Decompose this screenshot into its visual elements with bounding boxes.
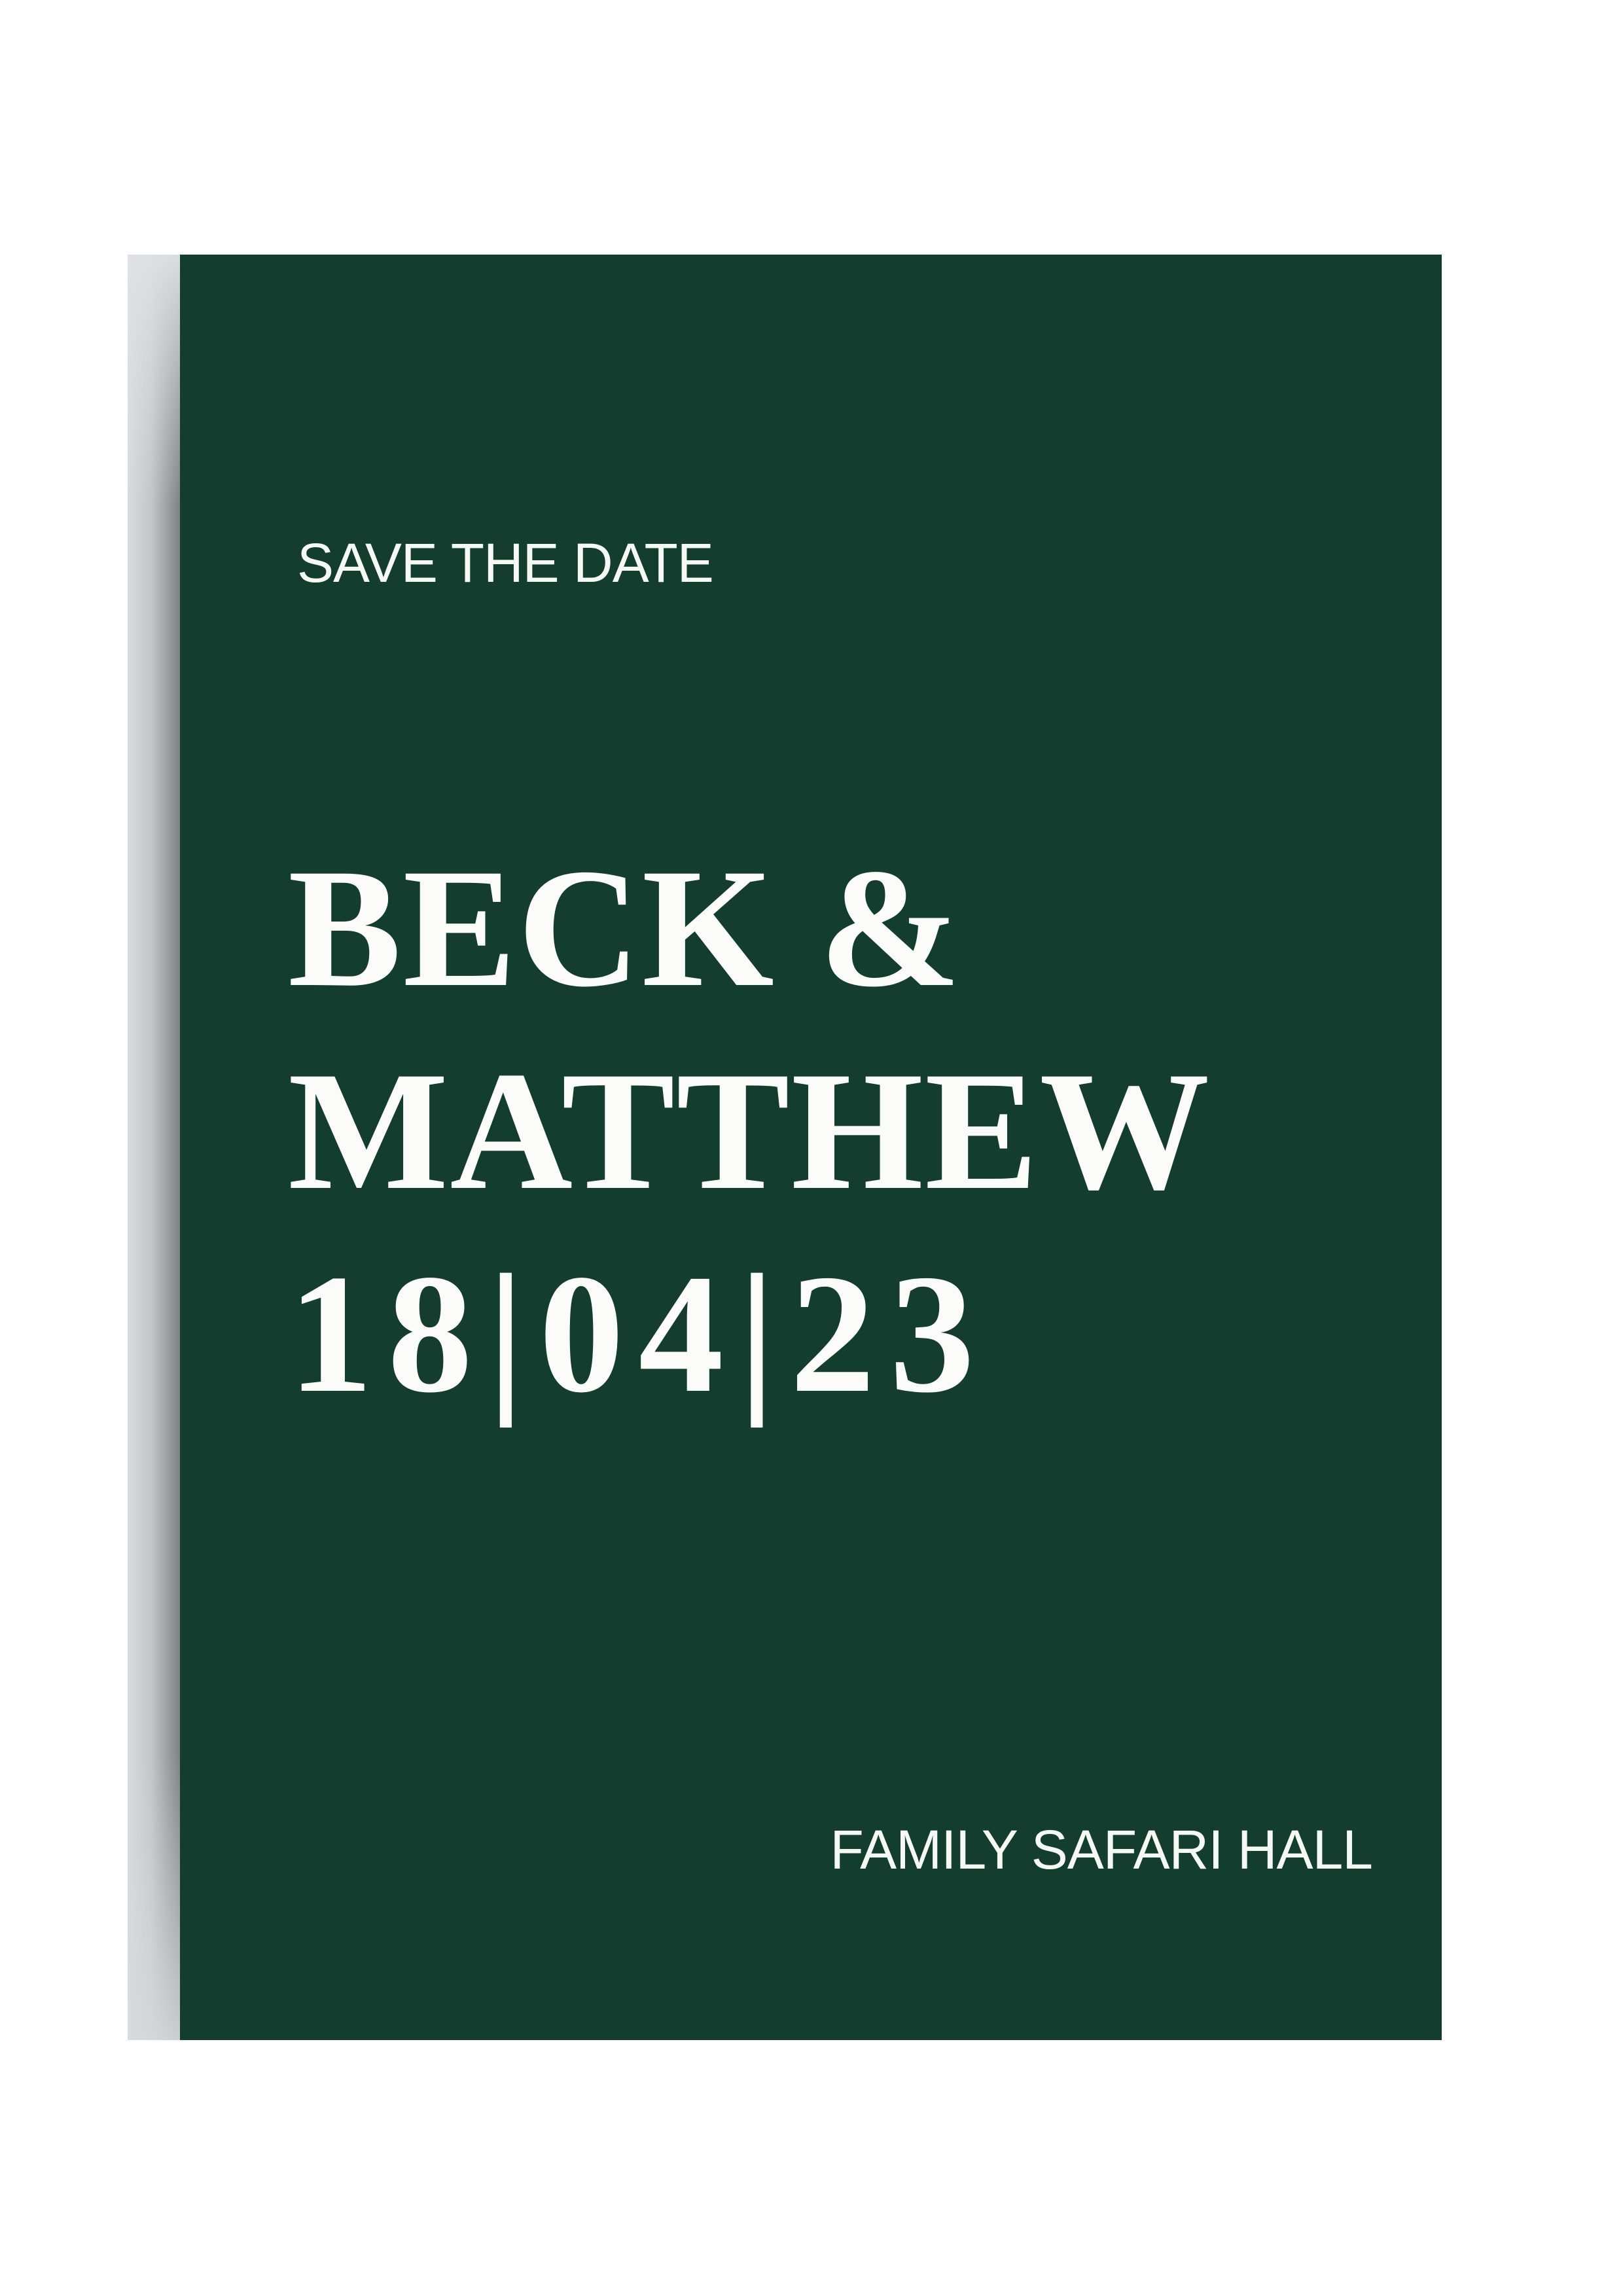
page-background: SAVE THE DATE BECK & MATTHEW 18|04|23 FA… — [0, 0, 1623, 2296]
name-line-1: BECK & — [288, 827, 1211, 1030]
save-the-date-card: SAVE THE DATE BECK & MATTHEW 18|04|23 FA… — [180, 255, 1442, 2040]
card-spine-shadow — [128, 255, 180, 2040]
wedding-date: 18|04|23 — [288, 1232, 1211, 1435]
couple-names-and-date: BECK & MATTHEW 18|04|23 — [288, 827, 1211, 1435]
name-line-2: MATTHEW — [288, 1030, 1211, 1232]
save-the-date-label: SAVE THE DATE — [297, 535, 713, 590]
venue-label: FAMILY SAFARI HALL — [830, 1822, 1372, 1877]
